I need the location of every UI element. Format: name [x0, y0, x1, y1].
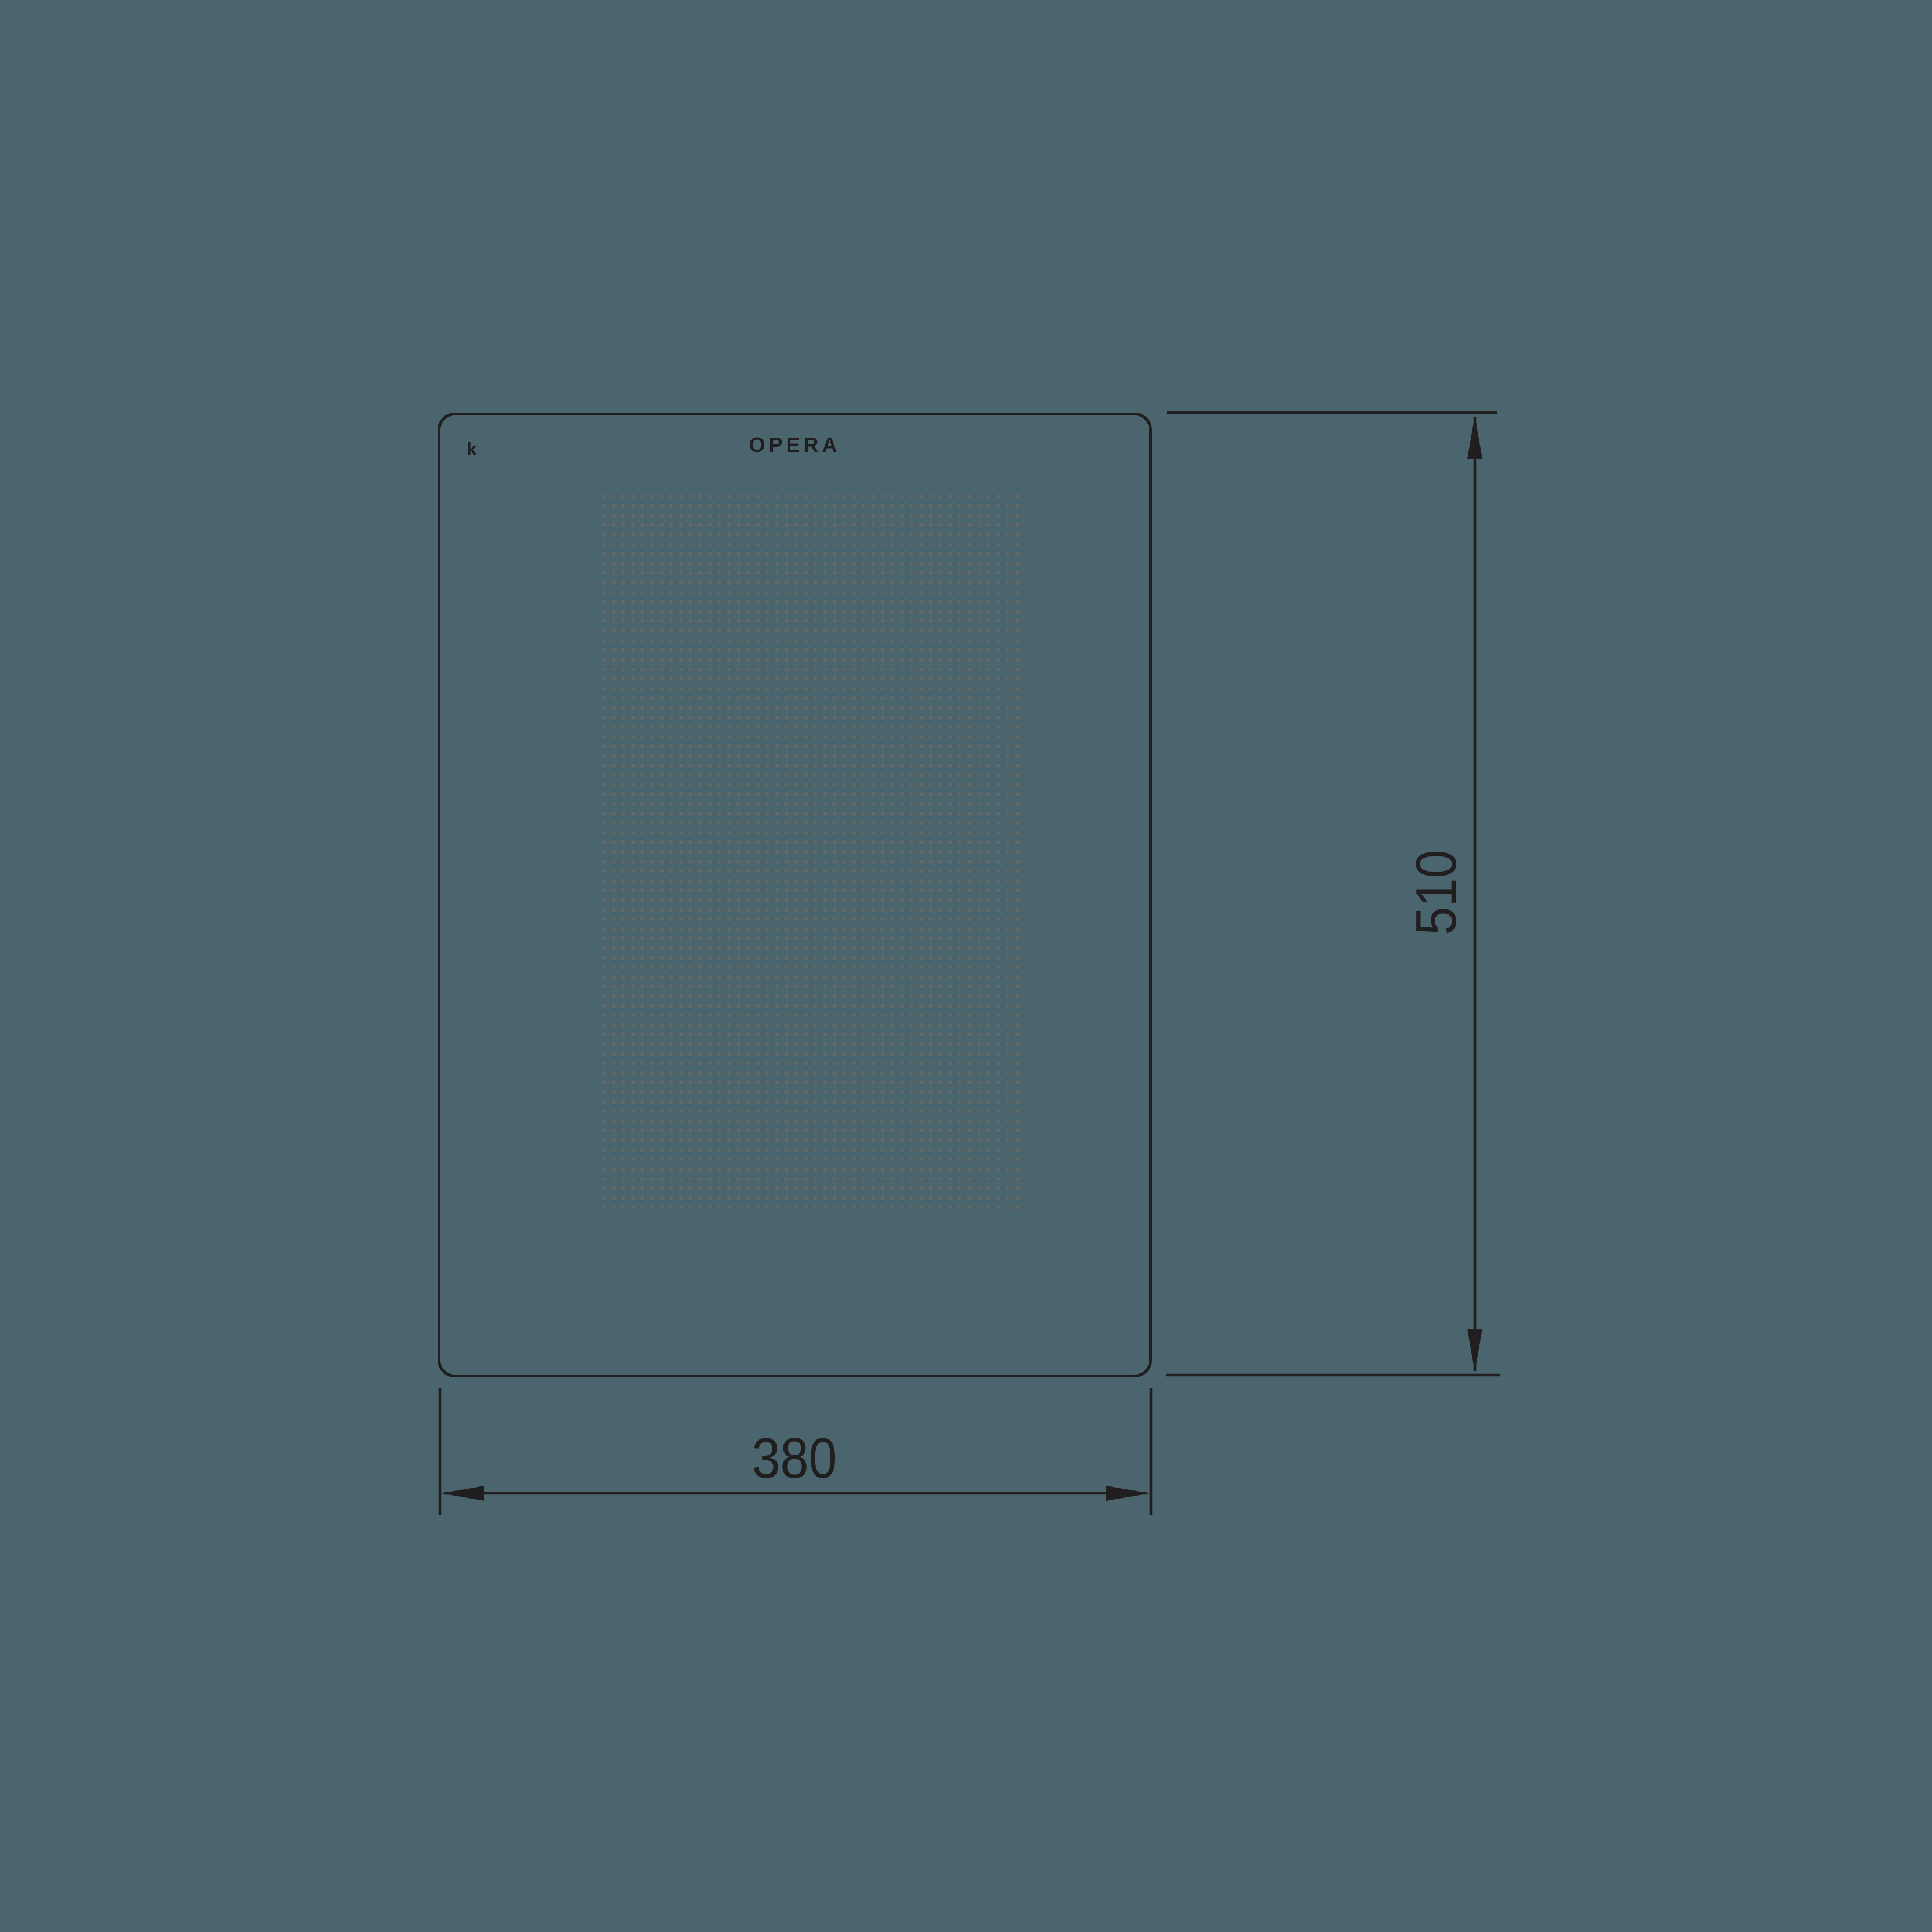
arrow-left-icon — [441, 1486, 484, 1501]
dimension-lines-layer — [0, 0, 1932, 1932]
width-dimension-label: 380 — [752, 1430, 837, 1486]
arrow-down-icon — [1467, 1329, 1482, 1372]
height-dimension-label: 510 — [1408, 850, 1464, 935]
arrow-right-icon — [1106, 1486, 1150, 1501]
arrow-up-icon — [1467, 415, 1482, 459]
drawing-canvas: k OPERA 380 510 — [0, 0, 1932, 1932]
